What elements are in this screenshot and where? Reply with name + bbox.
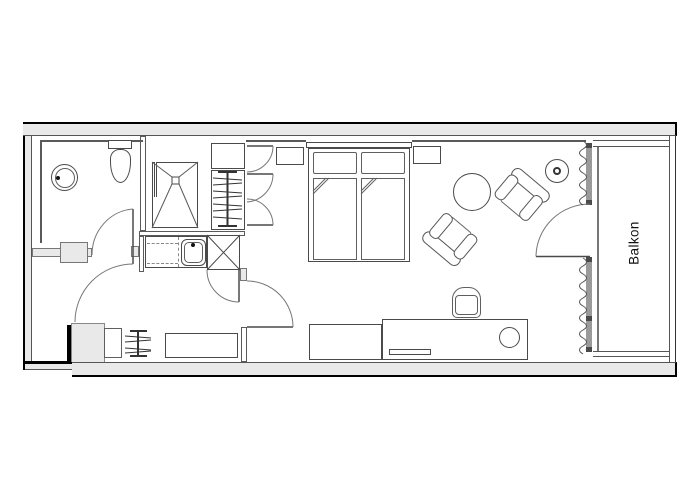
wardrobe [211, 143, 245, 230]
service-shaft [207, 235, 240, 270]
wardrobe-shelf-divider [211, 168, 245, 171]
hall-door-stub-bottom [241, 327, 247, 362]
wall-bottom [72, 362, 677, 377]
partition-bathroom [140, 136, 146, 231]
bathroom-wall-pier [60, 242, 88, 263]
desk-tray [389, 349, 431, 355]
minibar-dashed-line-vert [178, 237, 179, 267]
toilet-tank [108, 140, 132, 149]
armchair-1 [491, 166, 550, 225]
pillow-right [361, 152, 405, 174]
washbasin-drain-dot [56, 176, 60, 180]
wall-left [23, 136, 32, 370]
entry-door [75, 255, 133, 322]
wall-bottom-left-band [25, 361, 72, 370]
bathroom-door-stub [131, 246, 139, 257]
desk-chair-seat [455, 295, 478, 315]
bathroom-ledge-line-v [40, 140, 42, 243]
balcony-top-band [593, 140, 669, 147]
wall-top [23, 122, 677, 136]
bathroom-door [92, 209, 133, 255]
armchair-2 [421, 210, 480, 269]
glazing-cap [586, 316, 592, 321]
desk-stool-circle [499, 327, 520, 348]
wall-face-line-right [412, 140, 586, 142]
balcony-inner-face-line [597, 147, 599, 351]
pillow-left [313, 152, 357, 174]
shower-glass-panel [154, 162, 157, 197]
dresser [309, 324, 382, 360]
entry-wall-chunk [71, 323, 105, 362]
closet-doors [247, 146, 273, 225]
hall-door-stub-top [240, 268, 247, 281]
balcony-bottom-band [593, 351, 669, 357]
floor-plan: Balkon [0, 0, 700, 500]
nightstand-left [276, 147, 304, 165]
minibar-dashed-line-bottom [147, 263, 178, 264]
glazing-cap [586, 257, 592, 262]
glazing-cap [586, 200, 592, 205]
balcony-right-wall [669, 136, 676, 362]
entry-coat-rack [125, 330, 151, 357]
glazing-cap [586, 143, 592, 148]
vanity-faucet-dot [191, 243, 195, 247]
nightstand-right [413, 146, 441, 164]
niche-left-wall [139, 236, 144, 272]
balcony-door [536, 204, 590, 257]
glazing-cap [586, 347, 592, 352]
vestibule-door [207, 270, 239, 302]
balcony-label: Balkon [627, 221, 642, 265]
minibar-dashed-line-top [147, 243, 178, 244]
mattress-right [361, 178, 405, 260]
shower-tray [152, 162, 198, 228]
toilet-bowl [110, 149, 131, 183]
round-table [453, 173, 491, 211]
entry-closet-box [104, 328, 122, 358]
wall-face-line-left [246, 140, 306, 142]
room-door [247, 281, 293, 327]
luggage-bench [165, 333, 238, 358]
floor-lamp-inner [553, 167, 561, 175]
mattress-left [313, 178, 357, 260]
glazing-lower [586, 257, 592, 352]
glazing-upper [586, 143, 592, 205]
